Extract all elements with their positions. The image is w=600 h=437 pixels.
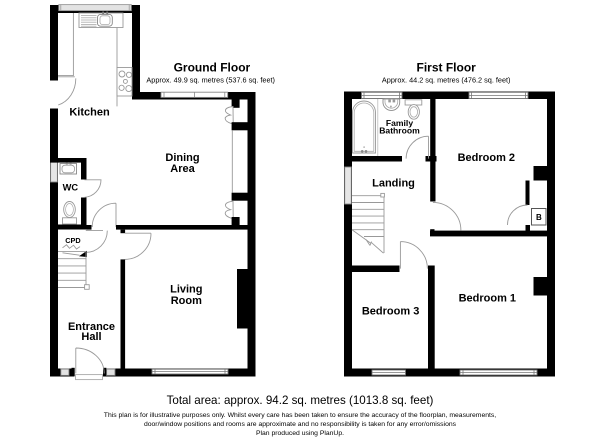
svg-text:This plan is for illustrative: This plan is for illustrative purposes o… — [104, 412, 497, 419]
svg-text:Ground Floor: Ground Floor — [174, 60, 251, 74]
svg-text:Landing: Landing — [372, 177, 415, 189]
svg-text:Bedroom 3: Bedroom 3 — [362, 306, 419, 318]
svg-text:B: B — [536, 213, 542, 222]
svg-text:Hall: Hall — [81, 331, 101, 343]
svg-text:Bedroom 2: Bedroom 2 — [458, 152, 515, 164]
svg-text:First Floor: First Floor — [417, 60, 477, 74]
svg-text:Total area: approx. 94.2 sq. m: Total area: approx. 94.2 sq. metres (101… — [167, 394, 434, 407]
svg-text:Bathroom: Bathroom — [379, 126, 420, 136]
svg-text:Plan produced using PlanUp.: Plan produced using PlanUp. — [256, 430, 344, 437]
svg-text:CPD: CPD — [65, 236, 80, 245]
svg-text:Room: Room — [171, 295, 202, 307]
svg-text:Living: Living — [170, 283, 202, 295]
svg-text:Kitchen: Kitchen — [69, 107, 110, 119]
svg-text:Bedroom 1: Bedroom 1 — [459, 293, 516, 305]
svg-text:Approx. 44.2 sq. metres (476.2: Approx. 44.2 sq. metres (476.2 sq. feet) — [382, 75, 511, 84]
svg-text:Approx. 49.9 sq. metres (537.6: Approx. 49.9 sq. metres (537.6 sq. feet) — [146, 75, 275, 84]
svg-text:Area: Area — [170, 163, 195, 175]
svg-text:WC: WC — [63, 182, 79, 192]
svg-text:door/window positions and room: door/window positions and rooms are appr… — [144, 421, 457, 428]
